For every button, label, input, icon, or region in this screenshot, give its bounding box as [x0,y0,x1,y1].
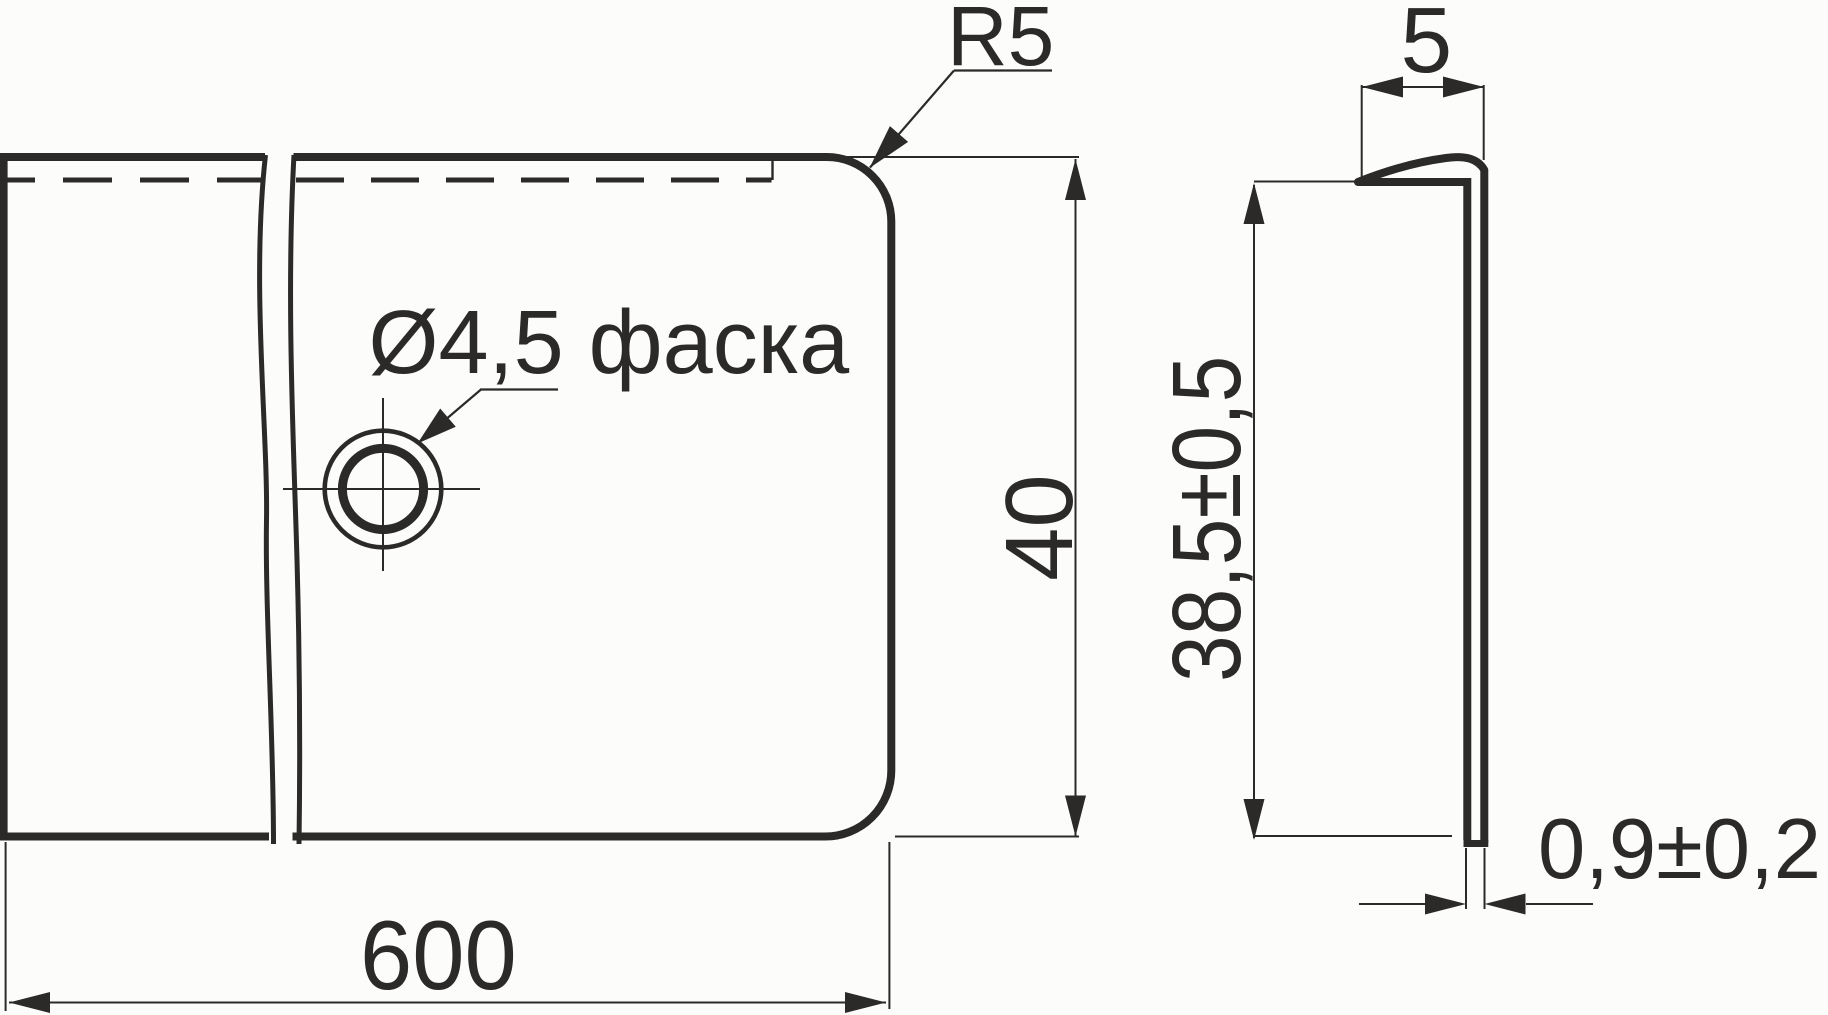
svg-text:0,9±0,2: 0,9±0,2 [1538,802,1821,897]
svg-text:40: 40 [986,474,1093,581]
svg-text:5: 5 [1401,0,1453,92]
svg-text:Ø4,5 фаска: Ø4,5 фаска [369,293,851,393]
svg-text:R5: R5 [947,0,1054,83]
svg-text:600: 600 [360,901,517,1010]
svg-text:38,5±0,5: 38,5±0,5 [1153,356,1261,682]
